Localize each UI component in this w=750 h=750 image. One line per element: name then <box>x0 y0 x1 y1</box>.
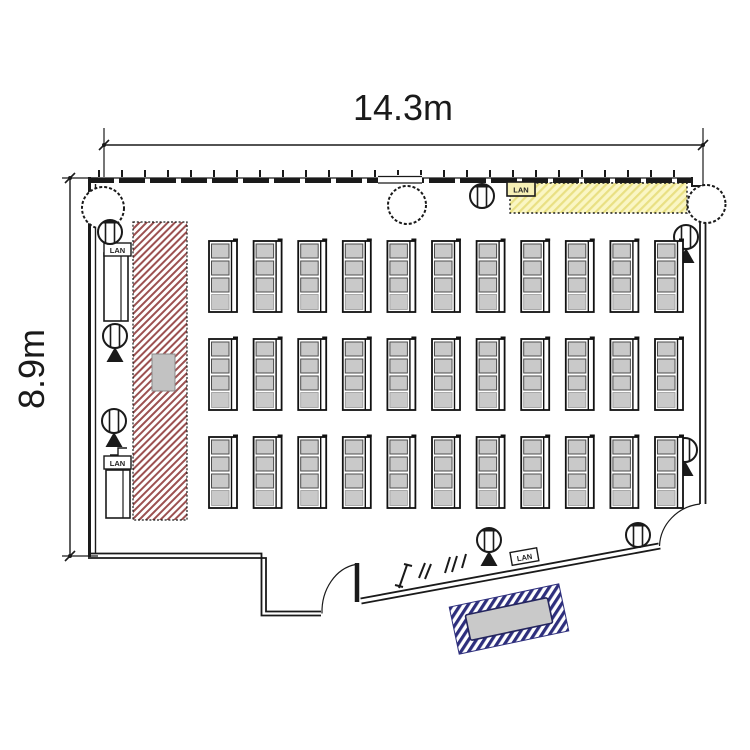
desk-unit <box>298 436 327 509</box>
ceiling-speaker-icon <box>470 184 494 208</box>
chair-icon <box>212 261 230 275</box>
chair-icon <box>390 440 408 454</box>
door-hardware-marks <box>395 554 466 588</box>
lan-port-top-left: LAN <box>104 243 131 256</box>
desk-top <box>390 491 408 506</box>
desk-top <box>345 491 363 506</box>
chair-icon <box>613 376 631 390</box>
dimension-left: 8.9m <box>11 173 98 561</box>
desk-top <box>256 295 274 310</box>
chair-icon <box>390 359 408 373</box>
desk-unit <box>477 240 506 313</box>
desk-unit <box>254 436 283 509</box>
dimension-dot <box>68 176 72 180</box>
lan-port-label: LAN <box>110 459 125 468</box>
chair-icon <box>345 457 363 471</box>
floor-plan-drawing: 14.3m 8.9m <box>0 0 750 750</box>
chair-icon <box>212 359 230 373</box>
chair-icon <box>256 244 274 258</box>
chair-icon <box>390 244 408 258</box>
chair-icon <box>479 457 497 471</box>
desk-unit <box>387 436 416 509</box>
side-door-arc <box>660 504 701 546</box>
chair-icon <box>390 457 408 471</box>
desk-unit <box>566 436 595 509</box>
chair-icon <box>524 474 542 488</box>
desk-unit <box>432 338 461 411</box>
chair-icon <box>479 474 497 488</box>
chair-icon <box>568 474 586 488</box>
chair-icon <box>301 359 319 373</box>
chair-icon <box>256 376 274 390</box>
desk-unit <box>432 436 461 509</box>
wall-board-upper <box>104 253 128 321</box>
chair-icon <box>658 440 676 454</box>
desk-unit <box>387 338 416 411</box>
bottom-wall-inner <box>88 558 321 612</box>
chair-icon <box>568 342 586 356</box>
chair-icon <box>524 278 542 292</box>
desk-unit <box>254 240 283 313</box>
chair-icon <box>345 474 363 488</box>
chair-icon <box>613 359 631 373</box>
desk-unit <box>343 338 372 411</box>
chair-icon <box>524 244 542 258</box>
desk-top <box>524 491 542 506</box>
chair-icon <box>345 244 363 258</box>
desk-top <box>212 393 230 408</box>
chair-icon <box>613 474 631 488</box>
chair-icon <box>524 342 542 356</box>
desk-top <box>435 393 453 408</box>
chair-icon <box>658 474 676 488</box>
chair-icon <box>479 376 497 390</box>
desk-top <box>390 295 408 310</box>
desk-grid <box>209 240 684 509</box>
chair-icon <box>435 440 453 454</box>
chair-icon <box>256 474 274 488</box>
desk-top <box>301 295 319 310</box>
chair-icon <box>212 278 230 292</box>
chair-icon <box>256 342 274 356</box>
chair-icon <box>658 278 676 292</box>
chair-icon <box>301 342 319 356</box>
desk-top <box>613 491 631 506</box>
chair-icon <box>658 359 676 373</box>
chair-icon <box>435 261 453 275</box>
chair-icon <box>256 261 274 275</box>
chair-icon <box>524 376 542 390</box>
desk-top <box>390 393 408 408</box>
desk-unit <box>387 240 416 313</box>
chair-icon <box>390 278 408 292</box>
dimension-dot <box>68 554 72 558</box>
chair-icon <box>479 244 497 258</box>
desk-unit <box>610 240 639 313</box>
desk-unit <box>209 436 238 509</box>
chair-icon <box>435 359 453 373</box>
desk-unit <box>254 338 283 411</box>
chair-icon <box>390 342 408 356</box>
chair-icon <box>524 457 542 471</box>
desk-top <box>212 295 230 310</box>
chair-icon <box>524 261 542 275</box>
chair-icon <box>435 278 453 292</box>
ceiling-speaker-icon <box>626 523 650 547</box>
desk-unit <box>655 240 684 313</box>
chair-icon <box>524 440 542 454</box>
desk-unit <box>521 436 550 509</box>
ceiling-speaker-icon <box>102 409 126 447</box>
desk-top <box>524 295 542 310</box>
chair-icon <box>568 359 586 373</box>
chair-icon <box>256 278 274 292</box>
chair-icon <box>390 474 408 488</box>
desk-top <box>301 491 319 506</box>
chair-icon <box>658 376 676 390</box>
desk-unit <box>298 338 327 411</box>
desk-unit <box>655 436 684 509</box>
chair-icon <box>301 376 319 390</box>
counter-area <box>510 183 687 213</box>
desk-unit <box>610 436 639 509</box>
height-label: 8.9m <box>11 329 52 409</box>
chair-icon <box>301 457 319 471</box>
chair-icon <box>256 359 274 373</box>
structural-column-icon <box>688 185 726 223</box>
dimension-dot <box>102 143 106 147</box>
desk-unit <box>209 338 238 411</box>
lectern <box>152 354 175 391</box>
desk-unit <box>209 240 238 313</box>
desk-top <box>435 295 453 310</box>
chair-icon <box>345 376 363 390</box>
chair-icon <box>568 278 586 292</box>
chair-icon <box>435 342 453 356</box>
lan-port-bottom: LAN <box>510 548 539 565</box>
desk-top <box>345 393 363 408</box>
desk-top <box>568 393 586 408</box>
desk-top <box>658 491 676 506</box>
desk-unit <box>298 240 327 313</box>
chair-icon <box>301 474 319 488</box>
chair-icon <box>568 244 586 258</box>
lan-port-top-right: LAN <box>507 182 535 196</box>
chair-icon <box>479 342 497 356</box>
lan-port-label: LAN <box>110 246 125 255</box>
chair-icon <box>435 474 453 488</box>
desk-top <box>658 393 676 408</box>
desk-unit <box>477 436 506 509</box>
bottom-wall-outer <box>88 554 321 616</box>
structural-column-icon <box>388 186 426 224</box>
ceiling-speaker-icon <box>103 324 127 362</box>
chair-icon <box>256 457 274 471</box>
desk-top <box>524 393 542 408</box>
chair-icon <box>435 244 453 258</box>
chair-icon <box>658 244 676 258</box>
width-label: 14.3m <box>353 87 453 128</box>
wall-boards-left <box>104 253 130 518</box>
chair-icon <box>212 457 230 471</box>
chair-icon <box>212 244 230 258</box>
chair-icon <box>345 440 363 454</box>
chair-icon <box>613 440 631 454</box>
chair-icon <box>613 278 631 292</box>
chair-icon <box>345 278 363 292</box>
chair-icon <box>658 261 676 275</box>
desk-unit <box>521 338 550 411</box>
chair-icon <box>212 342 230 356</box>
chair-icon <box>301 440 319 454</box>
desk-unit <box>521 240 550 313</box>
desk-unit <box>566 240 595 313</box>
desk-top <box>613 295 631 310</box>
chair-icon <box>301 244 319 258</box>
chair-icon <box>212 376 230 390</box>
chair-icon <box>524 359 542 373</box>
desk-unit <box>477 338 506 411</box>
desk-top <box>212 491 230 506</box>
chair-icon <box>301 261 319 275</box>
desk-top <box>479 393 497 408</box>
desk-unit <box>343 240 372 313</box>
lan-port-left-lower: LAN <box>104 456 131 469</box>
ceiling-speaker-icon <box>477 528 501 566</box>
chair-icon <box>390 376 408 390</box>
desk-unit <box>610 338 639 411</box>
chair-icon <box>613 244 631 258</box>
chair-icon <box>613 261 631 275</box>
chair-icon <box>390 261 408 275</box>
chair-icon <box>479 278 497 292</box>
desk-unit <box>655 338 684 411</box>
chair-icon <box>301 278 319 292</box>
desk-top <box>301 393 319 408</box>
chair-icon <box>345 342 363 356</box>
chair-icon <box>613 457 631 471</box>
chair-icon <box>479 440 497 454</box>
chair-icon <box>613 342 631 356</box>
ceiling-speaker-icon <box>98 220 122 244</box>
desk-top <box>613 393 631 408</box>
desk-top <box>256 491 274 506</box>
lan-port-label: LAN <box>513 186 528 195</box>
chair-icon <box>568 376 586 390</box>
desk-unit <box>432 240 461 313</box>
chair-icon <box>212 440 230 454</box>
floor-plan-canvas: 14.3m 8.9m <box>0 0 750 750</box>
desk-top <box>345 295 363 310</box>
chair-icon <box>435 376 453 390</box>
chair-icon <box>212 474 230 488</box>
desk-top <box>658 295 676 310</box>
dimension-dot <box>701 143 705 147</box>
chair-icon <box>568 261 586 275</box>
chair-icon <box>658 457 676 471</box>
chair-icon <box>568 457 586 471</box>
desk-unit <box>566 338 595 411</box>
chair-icon <box>568 440 586 454</box>
wall-panel-notch <box>110 448 127 455</box>
wall-board-lower <box>106 470 130 518</box>
desk-top <box>479 491 497 506</box>
chair-icon <box>345 261 363 275</box>
desk-top <box>256 393 274 408</box>
chair-icon <box>658 342 676 356</box>
chair-icon <box>256 440 274 454</box>
desk-unit <box>343 436 372 509</box>
chair-icon <box>435 457 453 471</box>
desk-top <box>435 491 453 506</box>
entrance-mat <box>449 584 569 654</box>
desk-top <box>568 491 586 506</box>
chair-icon <box>479 261 497 275</box>
chair-icon <box>345 359 363 373</box>
desk-top <box>479 295 497 310</box>
entrance-door-arc <box>322 565 356 614</box>
desk-top <box>568 295 586 310</box>
chair-icon <box>479 359 497 373</box>
